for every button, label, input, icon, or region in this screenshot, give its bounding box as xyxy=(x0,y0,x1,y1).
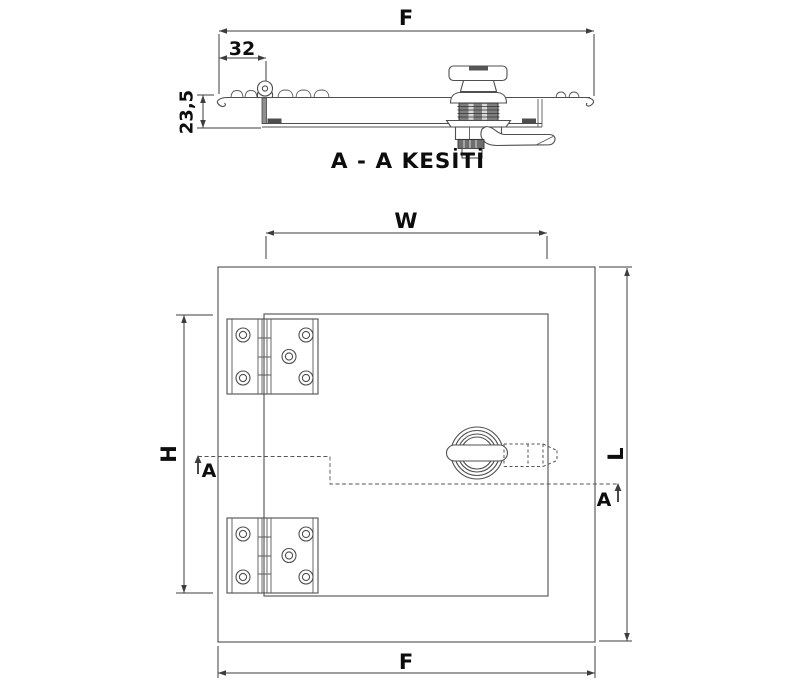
pan-left-wall xyxy=(262,98,267,124)
dim-label-W: W xyxy=(394,209,417,233)
dim-door-height-H: H xyxy=(157,315,213,593)
dim-label-23-5: 23,5 xyxy=(177,90,198,134)
section-label-A-right: A xyxy=(597,489,612,511)
section-marker-left: A xyxy=(195,455,217,482)
hinge-top xyxy=(227,319,318,394)
lock-latch-hidden xyxy=(504,444,557,467)
dim-label-F-top: F xyxy=(399,6,413,30)
lock-collar xyxy=(451,93,507,104)
lock-handle-bar xyxy=(447,445,508,461)
plan-view: A A W H xyxy=(157,209,632,678)
dim-door-width-W: W xyxy=(266,209,547,259)
dim-frame-length-L: L xyxy=(599,267,632,641)
dim-panel-depth-23-5: 23,5 xyxy=(177,90,262,134)
section-marker-right: A xyxy=(597,483,622,511)
dim-label-F-bottom: F xyxy=(399,650,413,674)
dim-label-32: 32 xyxy=(229,38,255,60)
gasket-right xyxy=(522,119,536,124)
dim-hinge-offset-32: 32 xyxy=(219,38,266,81)
drawing-svg: F 32 23,5 xyxy=(0,0,800,700)
section-cut-line: A A xyxy=(195,455,622,511)
lock-plan xyxy=(447,427,558,479)
gasket-left xyxy=(268,119,282,124)
technical-drawing-access-panel: F 32 23,5 xyxy=(0,0,800,700)
dim-label-L: L xyxy=(604,447,628,460)
dim-total-width-F: F xyxy=(219,6,594,96)
lock-washer xyxy=(447,121,511,128)
lock-knob-neck xyxy=(461,81,497,92)
lock-threaded-barrel xyxy=(459,103,498,121)
lock-serrated-washer xyxy=(458,140,484,149)
hinge-bottom xyxy=(227,518,318,593)
lock-latch-arm xyxy=(481,127,555,146)
lock-section xyxy=(447,66,556,158)
section-title: A - A KESİTİ xyxy=(331,148,485,174)
section-view: F 32 23,5 xyxy=(177,6,595,174)
hinge-section xyxy=(258,81,273,98)
section-profile xyxy=(217,90,593,127)
hinge-pin-outer xyxy=(258,81,273,96)
dim-frame-width-F: F xyxy=(218,646,595,678)
lock-knob-notch xyxy=(469,66,488,71)
section-label-A-left: A xyxy=(202,460,217,482)
frame-outline xyxy=(218,267,595,642)
dim-label-H: H xyxy=(157,445,181,463)
